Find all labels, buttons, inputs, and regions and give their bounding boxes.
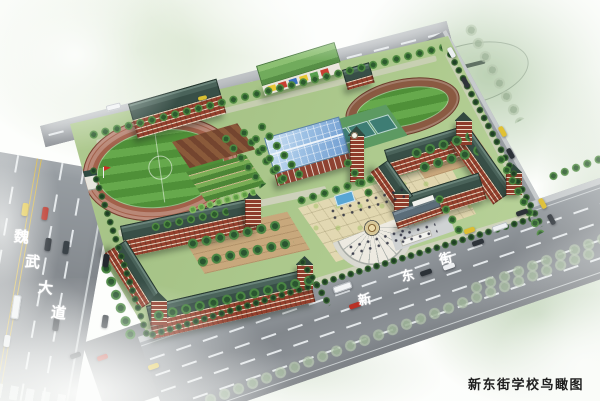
corner-tower bbox=[150, 292, 167, 325]
clock-face bbox=[351, 132, 358, 139]
tower-body bbox=[506, 173, 522, 195]
crosswalk bbox=[0, 372, 70, 401]
tower-cap bbox=[150, 292, 167, 301]
flag-pole bbox=[103, 167, 104, 178]
caption-title: 新东街学校鸟瞰图 bbox=[468, 374, 584, 393]
facade-panel bbox=[278, 81, 287, 89]
tower-cap bbox=[505, 164, 522, 173]
tower-cap bbox=[455, 112, 472, 121]
road-name-char-weiwu: 武 bbox=[24, 250, 41, 272]
facade-panel bbox=[310, 71, 319, 79]
corner-tower bbox=[455, 112, 472, 145]
center-line-yellow bbox=[0, 159, 42, 401]
corner-tower bbox=[505, 164, 522, 195]
tower-body bbox=[456, 121, 472, 145]
road-name-char-weiwu: 道 bbox=[50, 301, 67, 323]
tent bbox=[61, 151, 69, 160]
road-name-char-weiwu: 大 bbox=[37, 276, 54, 298]
tower-cap bbox=[244, 190, 261, 199]
aerial-rendering-scene: 魏 武 大 道 新 东 街 新东街学校鸟瞰图 bbox=[0, 0, 600, 401]
facade-panel bbox=[299, 75, 308, 83]
facade-panel bbox=[289, 78, 298, 86]
facade-panel bbox=[268, 84, 277, 92]
roof-ridge bbox=[270, 133, 344, 156]
clock-tower bbox=[348, 126, 365, 182]
tower-body bbox=[297, 265, 313, 289]
tower-body bbox=[245, 199, 261, 225]
road-name-char-weiwu: 魏 bbox=[13, 225, 30, 247]
facade-panel bbox=[320, 68, 329, 76]
car bbox=[101, 315, 109, 329]
clock-tower-body bbox=[350, 136, 364, 182]
corner-tower bbox=[296, 256, 313, 289]
tower-body bbox=[151, 301, 167, 325]
tower-cap bbox=[296, 256, 313, 265]
corner-tower bbox=[244, 190, 261, 225]
